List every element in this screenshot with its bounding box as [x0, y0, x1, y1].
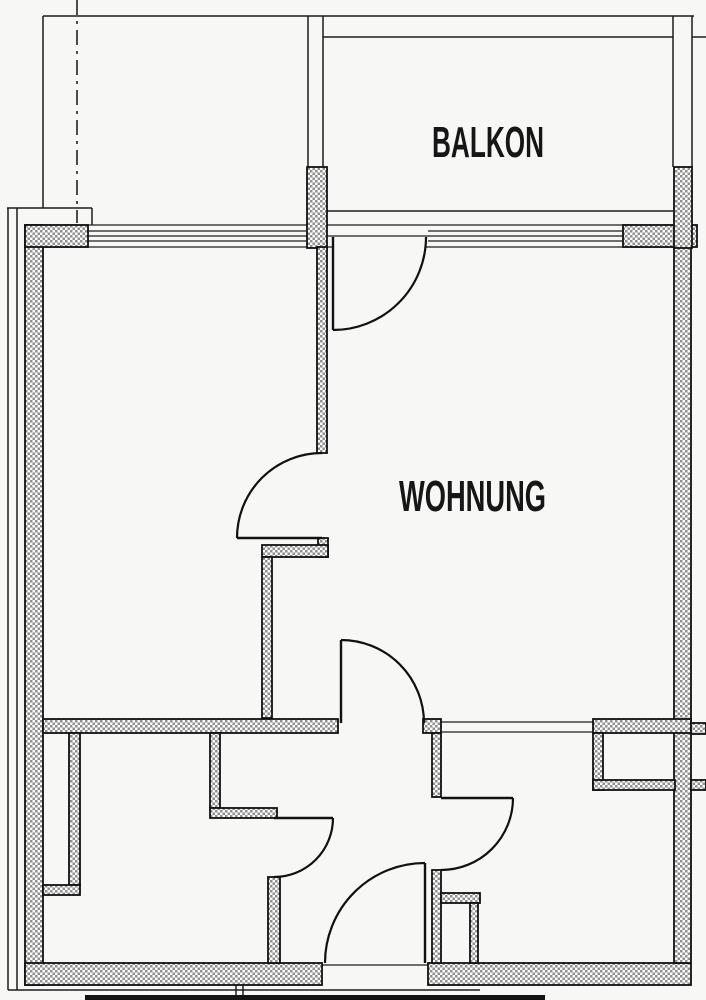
interior-wall	[262, 557, 272, 718]
floorplan-page: BALKON WOHNUNG	[0, 0, 706, 1000]
interior-wall	[432, 733, 441, 797]
duct-wall	[441, 893, 480, 903]
right-room-door-arc	[441, 798, 513, 870]
room-labels: BALKON WOHNUNG	[399, 118, 546, 521]
room-label-wohnung: WOHNUNG	[399, 472, 546, 521]
balcony-pier-left	[307, 167, 327, 248]
neighbour-wall-stub	[691, 780, 706, 790]
exterior-outline	[7, 0, 706, 1000]
outer-wall-bottom-right	[428, 963, 691, 985]
bathroom-door-arc	[274, 818, 333, 877]
window-pier-left	[25, 225, 88, 247]
neighbour-wall-stub	[691, 723, 706, 734]
hall-door-arc	[341, 640, 424, 723]
interior-wall	[210, 733, 220, 808]
shaft-wall	[69, 733, 80, 885]
balcony-pier-right	[674, 167, 692, 248]
interior-wall	[423, 719, 441, 733]
outer-wall-left	[25, 225, 43, 985]
interior-wall	[593, 719, 691, 733]
bottom-edge-band	[85, 995, 545, 1000]
interior-wall	[317, 247, 327, 453]
duct-wall	[470, 903, 478, 963]
interior-wall	[43, 719, 338, 733]
interior-wall	[268, 877, 280, 963]
shaft-wall	[43, 885, 80, 895]
entrance-door-arc	[325, 863, 425, 963]
room-label-balkon: BALKON	[432, 118, 544, 167]
shaft-wall	[593, 780, 675, 790]
interior-wall	[210, 808, 277, 818]
outer-wall-right	[674, 247, 691, 963]
doors	[237, 237, 513, 963]
window-band	[43, 225, 691, 965]
walls	[25, 167, 706, 985]
balcony-door-arc	[333, 237, 426, 330]
outer-wall-bottom-left	[25, 963, 322, 985]
interior-wall	[262, 545, 328, 557]
floor-plan: BALKON WOHNUNG	[0, 0, 706, 1000]
left-room-door-arc	[237, 453, 322, 538]
interior-wall	[432, 870, 441, 963]
